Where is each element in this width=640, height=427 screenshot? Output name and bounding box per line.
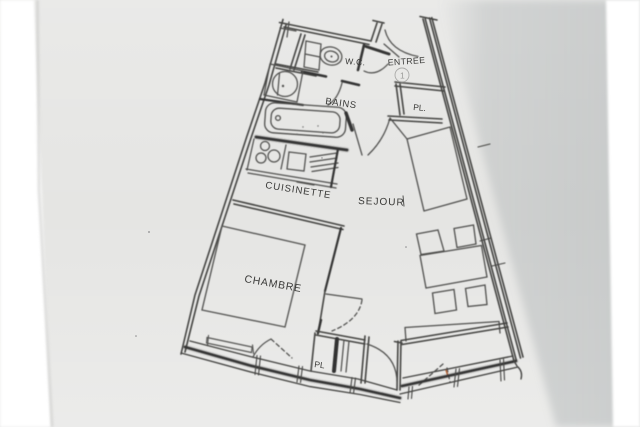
svg-text:PL: PL (314, 359, 326, 370)
svg-text:W.C.: W.C. (345, 56, 366, 67)
svg-text:PL.: PL. (413, 102, 427, 113)
svg-text:SEJOUR: SEJOUR (358, 196, 405, 209)
svg-text:1: 1 (400, 71, 405, 81)
